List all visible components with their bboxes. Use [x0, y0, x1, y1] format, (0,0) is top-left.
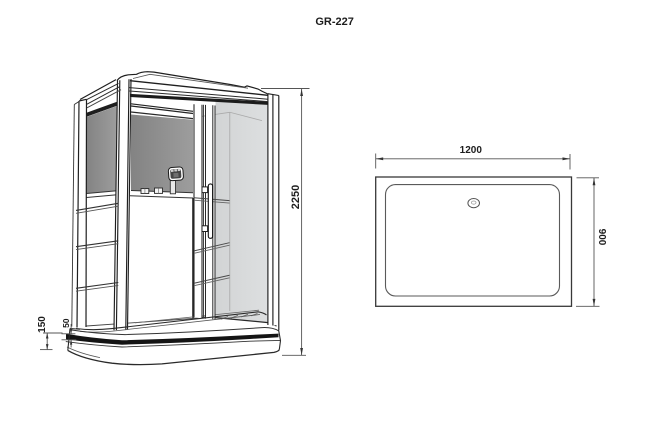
- svg-text:1200: 1200: [460, 145, 483, 156]
- svg-text:900: 900: [596, 229, 607, 246]
- svg-text:50: 50: [61, 318, 71, 328]
- svg-text:150: 150: [37, 316, 48, 333]
- svg-text:2250: 2250: [290, 185, 302, 209]
- svg-text:GR-227: GR-227: [315, 16, 354, 28]
